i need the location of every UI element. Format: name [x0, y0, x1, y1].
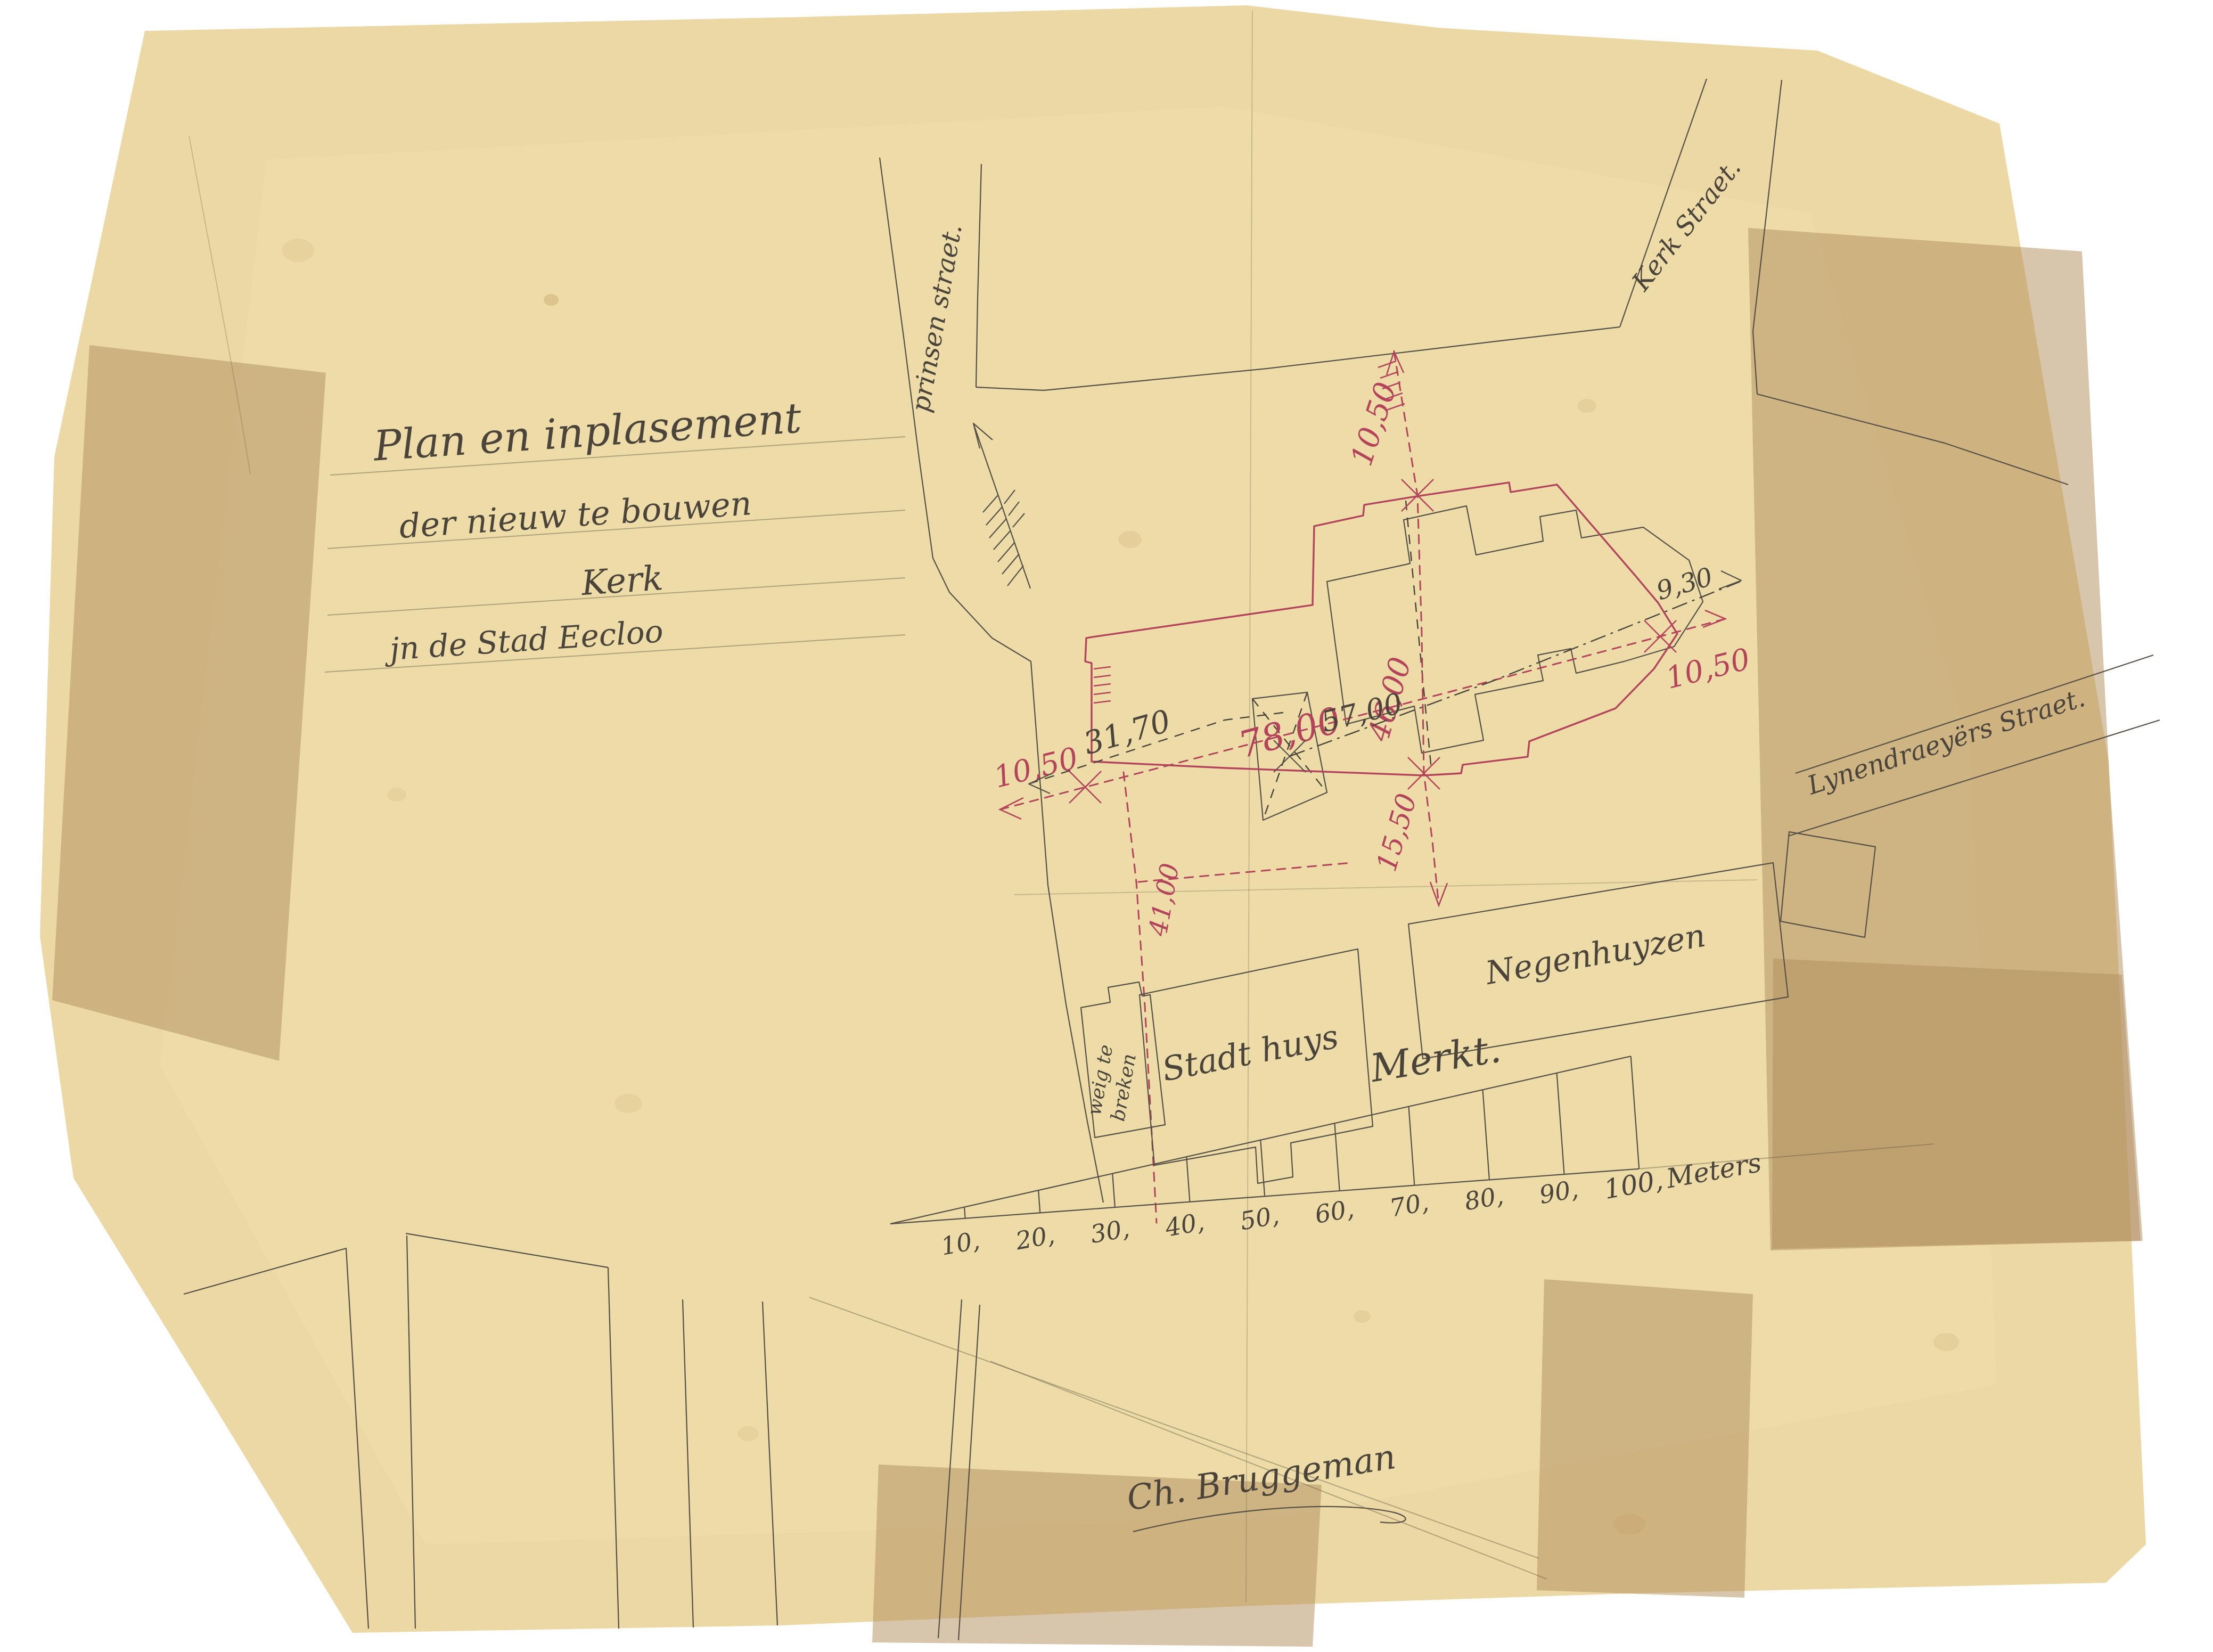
title-line-3: Kerk: [580, 559, 665, 603]
plan-canvas: Plan en inplasement der nieuw te bouwen …: [0, 0, 2213, 1652]
tape-patch-right-lower: [1772, 959, 2141, 1249]
scanned-plan-document: Plan en inplasement der nieuw te bouwen …: [0, 0, 2213, 1652]
tape-patch-bottom-right-faint: [1537, 1279, 1753, 1598]
tape-patch-left: [52, 345, 326, 1061]
